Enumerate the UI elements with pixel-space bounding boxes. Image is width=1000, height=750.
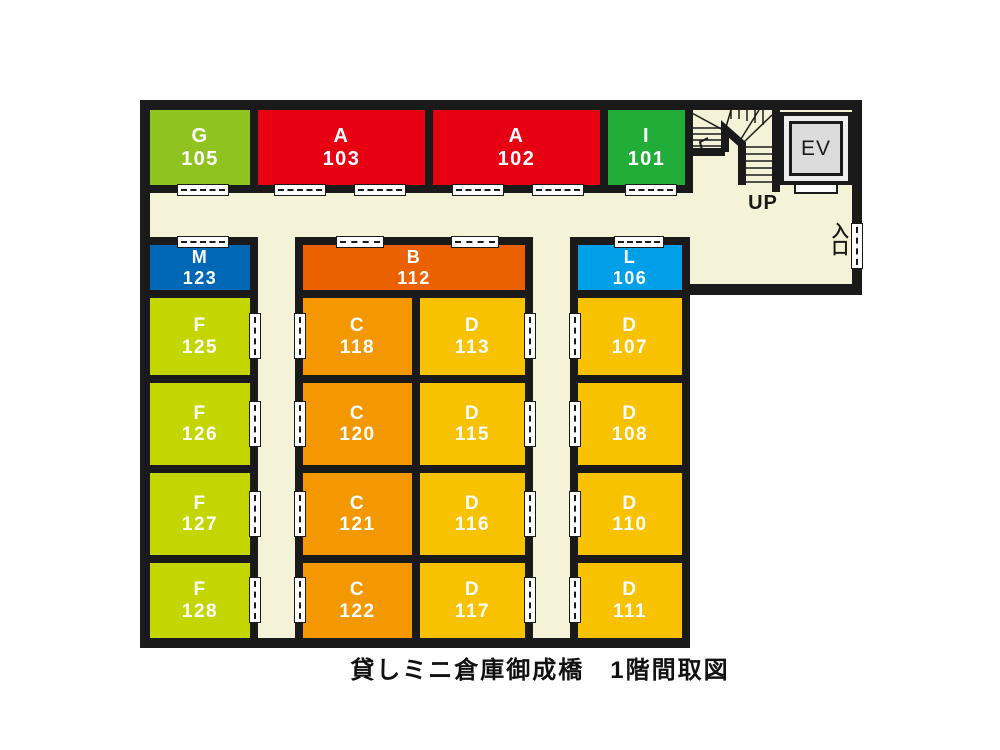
door-marker <box>249 401 261 447</box>
unit-D-111: D111 <box>570 555 690 646</box>
unit-number: 117 <box>455 601 490 622</box>
unit-I-101: I101 <box>600 102 693 193</box>
unit-C-121: C121 <box>295 465 420 563</box>
unit-letter: F <box>193 493 206 514</box>
door-marker <box>524 577 536 623</box>
unit-F-128: F128 <box>142 555 258 646</box>
door-marker <box>177 236 229 248</box>
door-marker <box>524 401 536 447</box>
door-marker <box>614 236 664 248</box>
unit-number: 111 <box>613 601 647 622</box>
door-marker <box>249 491 261 537</box>
unit-number: 116 <box>455 514 490 535</box>
unit-letter: G <box>191 125 208 147</box>
door-marker <box>249 577 261 623</box>
door-marker <box>294 577 306 623</box>
unit-number: 113 <box>455 337 490 358</box>
door-marker <box>451 236 499 248</box>
unit-number: 103 <box>323 148 361 170</box>
unit-number: 102 <box>498 148 536 170</box>
unit-letter: I <box>643 125 650 147</box>
unit-C-122: C122 <box>295 555 420 646</box>
unit-letter: M <box>192 247 209 267</box>
unit-D-110: D110 <box>570 465 690 563</box>
unit-number: 127 <box>182 514 218 535</box>
unit-D-113: D113 <box>412 290 533 383</box>
unit-letter: D <box>465 403 480 424</box>
unit-letter: D <box>465 315 480 336</box>
door-marker <box>532 184 584 196</box>
unit-letter: F <box>193 315 206 336</box>
unit-number: 121 <box>339 514 375 535</box>
door-marker <box>354 184 406 196</box>
unit-number: 112 <box>397 268 431 288</box>
unit-D-117: D117 <box>412 555 533 646</box>
unit-D-116: D116 <box>412 465 533 563</box>
unit-number: 118 <box>340 337 375 358</box>
door-marker <box>294 401 306 447</box>
unit-letter: D <box>622 493 637 514</box>
unit-number: 128 <box>182 601 218 622</box>
unit-number: 106 <box>613 268 648 288</box>
unit-number: 123 <box>183 268 218 288</box>
unit-letter: C <box>350 579 365 600</box>
door-marker <box>524 313 536 359</box>
unit-letter: C <box>350 315 365 336</box>
door-marker <box>274 184 326 196</box>
unit-G-105: G105 <box>142 102 258 193</box>
door-marker <box>177 184 229 196</box>
unit-number: 126 <box>182 424 218 445</box>
unit-letter: B <box>407 247 422 267</box>
unit-letter: A <box>509 125 525 147</box>
unit-D-107: D107 <box>570 290 690 383</box>
unit-letter: C <box>350 493 365 514</box>
door-marker <box>452 184 504 196</box>
unit-C-120: C120 <box>295 375 420 473</box>
door-marker <box>625 184 677 196</box>
door-marker <box>569 491 581 537</box>
unit-number: 110 <box>612 514 647 535</box>
unit-letter: L <box>624 247 637 267</box>
stairs-up-label: UP <box>736 192 790 215</box>
unit-A-103: A103 <box>250 102 433 193</box>
unit-F-127: F127 <box>142 465 258 563</box>
unit-F-126: F126 <box>142 375 258 473</box>
elevator-door <box>794 183 838 194</box>
unit-letter: D <box>465 579 480 600</box>
door-marker <box>249 313 261 359</box>
elevator-shaft: EV <box>780 112 852 185</box>
unit-number: 125 <box>182 337 218 358</box>
door-marker <box>336 236 384 248</box>
unit-letter: F <box>193 403 206 424</box>
unit-number: 105 <box>181 148 219 170</box>
elevator-car: EV <box>789 121 843 176</box>
unit-C-118: C118 <box>295 290 420 383</box>
unit-number: 101 <box>628 148 666 170</box>
floor-plan: EV UP 入口 貸しミニ倉庫御成橋 1階間取図 G105A103A102I10… <box>0 0 1000 750</box>
unit-number: 122 <box>339 601 375 622</box>
unit-letter: D <box>622 403 637 424</box>
door-marker <box>569 401 581 447</box>
door-marker <box>524 491 536 537</box>
unit-F-125: F125 <box>142 290 258 383</box>
door-marker <box>569 313 581 359</box>
unit-number: 108 <box>612 424 648 445</box>
unit-letter: C <box>350 403 365 424</box>
unit-letter: D <box>622 315 637 336</box>
door-marker <box>294 313 306 359</box>
unit-D-115: D115 <box>412 375 533 473</box>
plan-caption: 貸しミニ倉庫御成橋 1階間取図 <box>300 650 780 685</box>
door-marker <box>851 223 863 269</box>
door-marker <box>294 491 306 537</box>
unit-letter: D <box>622 579 637 600</box>
entrance-label: 入口 <box>828 222 847 274</box>
unit-letter: D <box>465 493 480 514</box>
unit-number: 120 <box>339 424 375 445</box>
door-marker <box>569 577 581 623</box>
unit-letter: A <box>334 125 350 147</box>
unit-number: 115 <box>455 424 490 445</box>
unit-D-108: D108 <box>570 375 690 473</box>
unit-number: 107 <box>612 337 648 358</box>
unit-A-102: A102 <box>425 102 608 193</box>
unit-letter: F <box>193 579 206 600</box>
